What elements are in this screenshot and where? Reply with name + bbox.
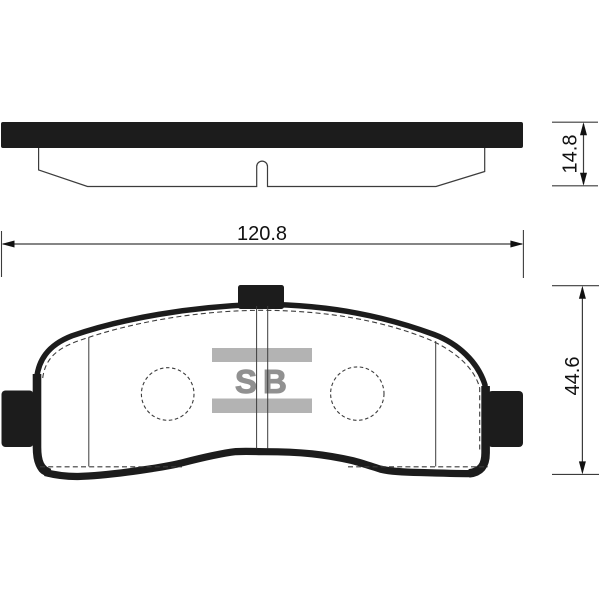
svg-text:SB: SB <box>235 363 293 400</box>
svg-text:14.8: 14.8 <box>560 135 582 174</box>
svg-text:120.8: 120.8 <box>237 223 287 245</box>
svg-text:44.6: 44.6 <box>562 357 584 396</box>
